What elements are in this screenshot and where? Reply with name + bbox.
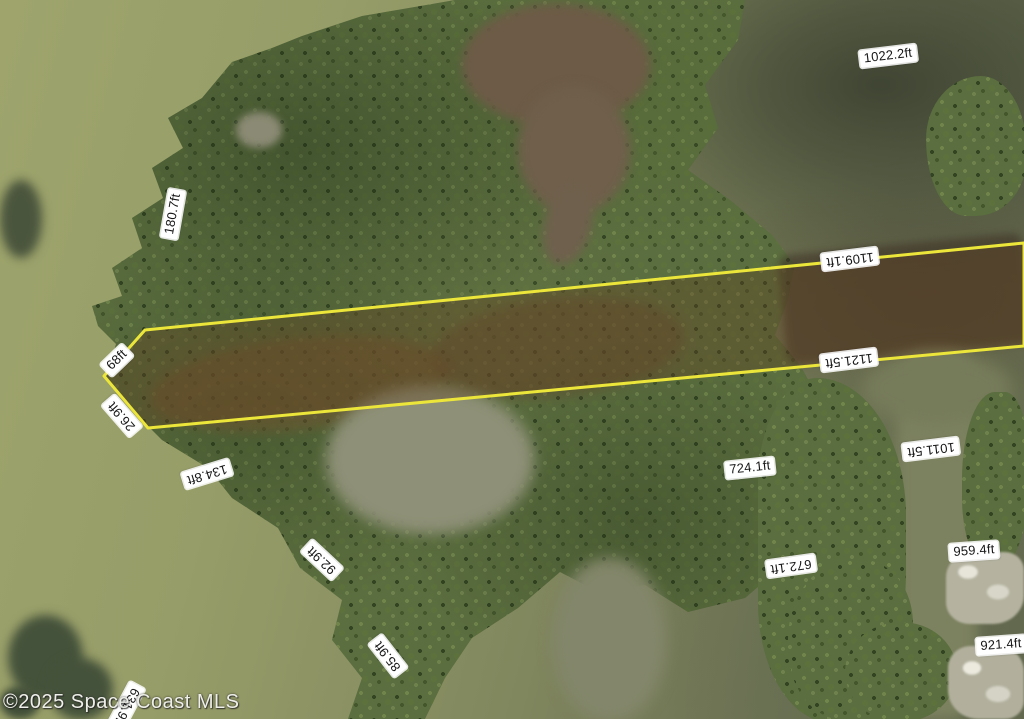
measurement-label: 921.4ft — [976, 635, 1024, 655]
parcel-boundary-polygon — [104, 243, 1024, 428]
aerial-map: 1022.2ft 180.7ft 68ft 26.9ft 134.8ft 92.… — [0, 0, 1024, 719]
watermark: ©2025 Space Coast MLS — [3, 691, 239, 714]
measurement-label: 959.4ft — [949, 541, 999, 561]
